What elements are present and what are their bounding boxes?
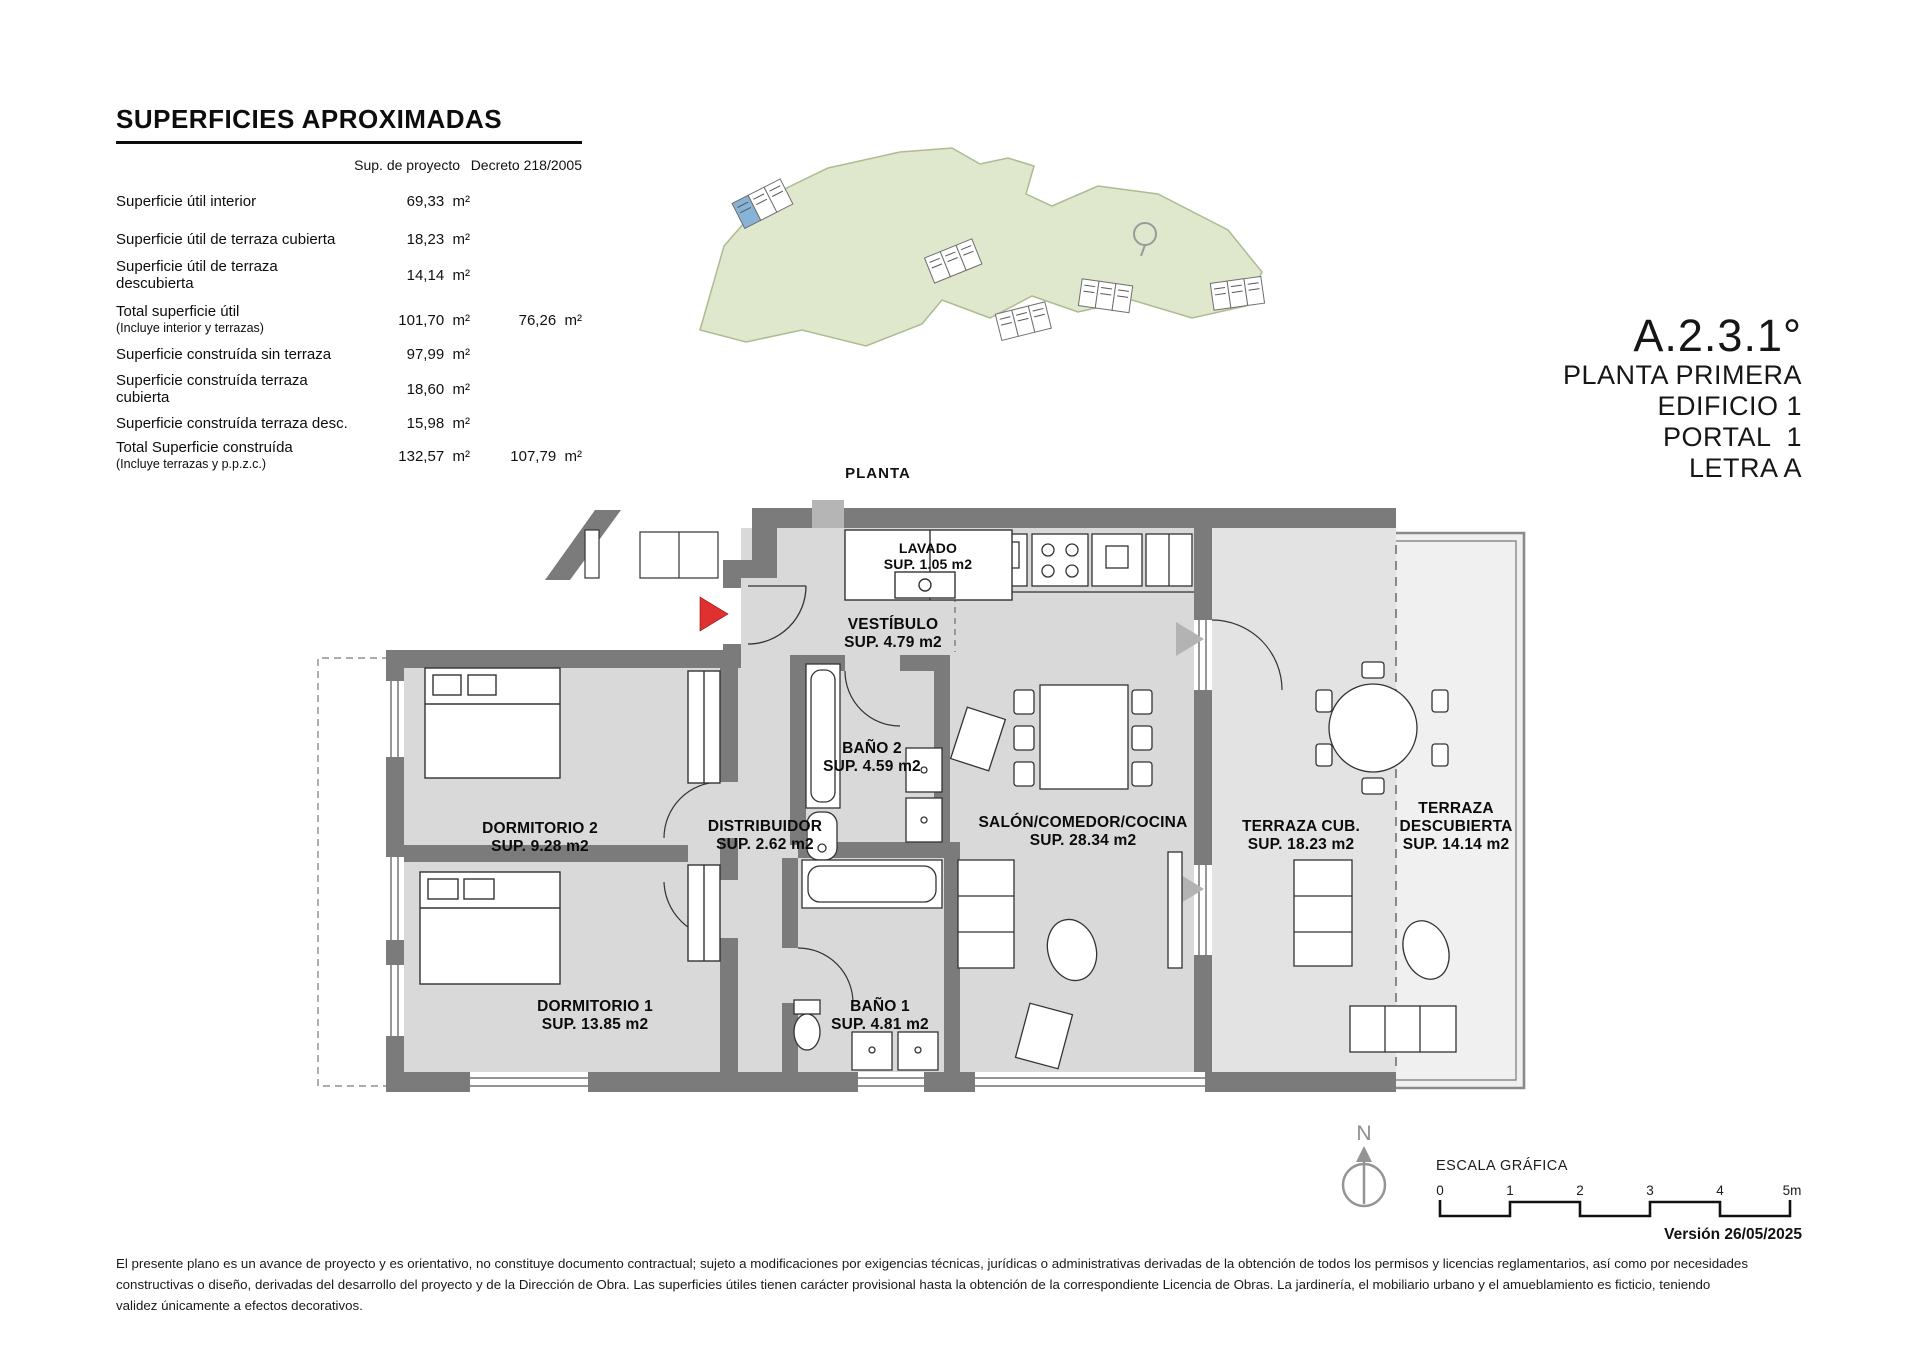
disclaimer-line2: constructivas o diseño, derivadas del de… — [116, 1274, 1748, 1295]
site-plan — [660, 120, 1300, 360]
table-row: Superficie útil de terraza descubierta 1… — [116, 258, 582, 292]
table-row: Superficie construída terraza cubierta 1… — [116, 372, 582, 406]
room-label-distribuidor: DISTRIBUIDORSUP. 2.62 m2 — [708, 818, 822, 854]
room-label-dormitorio1: DORMITORIO 1SUP. 13.85 m2 — [537, 998, 653, 1034]
room-label-bano2: BAÑO 2SUP. 4.59 m2 — [823, 740, 921, 776]
scale-tick-5: 5m — [1783, 1183, 1802, 1198]
table-row: Total superficie útil (Incluye interior … — [116, 303, 582, 337]
room-label-vestibulo: VESTÍBULOSUP. 4.79 m2 — [844, 616, 942, 652]
title-line-letra: LETRA A — [1563, 453, 1802, 484]
scale-tick-4: 4 — [1716, 1183, 1724, 1198]
table-row: Total Superficie construída (Incluye ter… — [116, 439, 582, 473]
porch-closet — [585, 530, 718, 578]
plan-heading: PLANTA — [845, 465, 911, 482]
unit-code: A.2.3.1° — [1563, 312, 1802, 360]
disclaimer: El presente plano es un avance de proyec… — [116, 1253, 1748, 1316]
room-label-bano1: BAÑO 1SUP. 4.81 m2 — [831, 998, 929, 1034]
plan-document-page: SUPERFICIES APROXIMADAS Sup. de proyecto… — [0, 0, 1920, 1357]
title-line-planta: PLANTA PRIMERA — [1563, 360, 1802, 391]
scale-tick-2: 2 — [1576, 1183, 1584, 1198]
surfaces-table: SUPERFICIES APROXIMADAS Sup. de proyecto… — [116, 104, 582, 473]
floor-plan-drawing — [310, 500, 1560, 1110]
scale-tick-3: 3 — [1646, 1183, 1654, 1198]
col-sup-proyecto: Sup. de proyecto — [304, 157, 460, 173]
room-label-lavado: LAVADOSUP. 1.05 m2 — [884, 540, 973, 572]
covered-terrace-floor — [1212, 528, 1396, 1072]
table-row: Superficie construída terraza desc. 15,9… — [116, 415, 582, 432]
room-label-terraza-cubierta: TERRAZA CUB.SUP. 18.23 m2 — [1242, 818, 1360, 854]
room-label-dormitorio2: DORMITORIO 2SUP. 9.28 m2 — [482, 820, 598, 856]
scale-tick-0: 0 — [1436, 1183, 1444, 1198]
version-text: Versión 26/05/2025 — [1664, 1226, 1802, 1244]
col-decreto: Decreto 218/2005 — [460, 157, 582, 173]
disclaimer-line3: validez únicamente a efectos decorativos… — [116, 1295, 1748, 1316]
scale-tick-1: 1 — [1506, 1183, 1514, 1198]
table-row: Superficie útil de terraza cubierta 18,2… — [116, 231, 582, 248]
table-row: Superficie construída sin terraza 97,99 … — [116, 346, 582, 363]
disclaimer-line1: El presente plano es un avance de proyec… — [116, 1253, 1748, 1274]
site-plan-parcel — [700, 148, 1262, 346]
title-block: A.2.3.1° PLANTA PRIMERA EDIFICIO 1 PORTA… — [1563, 312, 1802, 484]
entrance-arrow — [700, 597, 728, 631]
scale-bar-label: ESCALA GRÁFICA — [1436, 1158, 1568, 1174]
room-label-salon: SALÓN/COMEDOR/COCINASUP. 28.34 m2 — [979, 814, 1188, 850]
room-label-terraza-descubierta: TERRAZA DESCUBIERTA SUP. 14.14 m2 — [1399, 800, 1512, 854]
north-arrow-icon — [1330, 1130, 1400, 1220]
title-line-portal: PORTAL 1 — [1563, 422, 1802, 453]
surfaces-table-header: Sup. de proyecto Decreto 218/2005 — [116, 157, 582, 173]
table-row: Superficie útil interior 69,33 m² — [116, 193, 582, 210]
surfaces-table-title: SUPERFICIES APROXIMADAS — [116, 104, 582, 144]
scale-bar-drawing — [1425, 1178, 1810, 1224]
title-line-edificio: EDIFICIO 1 — [1563, 391, 1802, 422]
dashed-projection — [318, 658, 389, 1086]
